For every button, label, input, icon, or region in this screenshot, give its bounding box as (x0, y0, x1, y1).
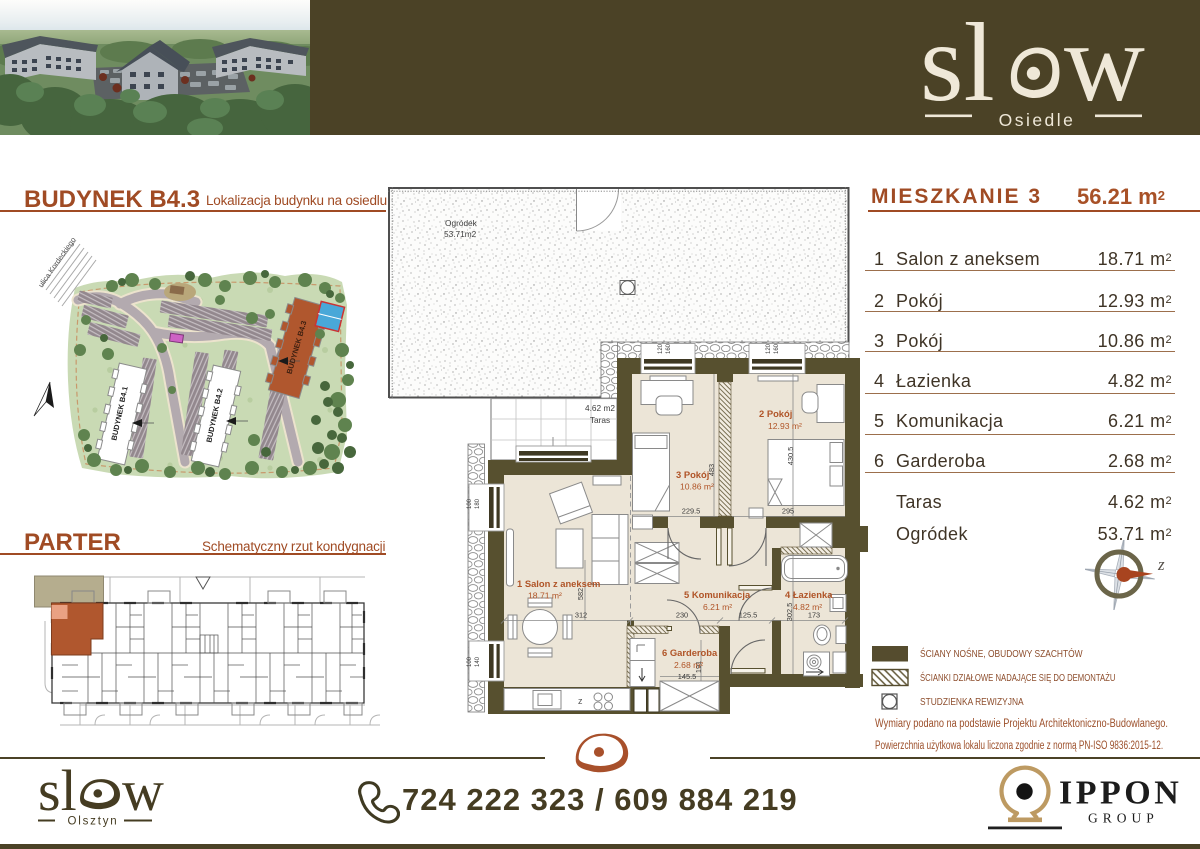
svg-text:10.86 m²: 10.86 m² (680, 482, 714, 492)
svg-text:120: 120 (658, 343, 664, 354)
svg-text:230: 230 (676, 611, 688, 620)
svg-text:6 Garderoba: 6 Garderoba (662, 647, 718, 658)
svg-text:Taras: Taras (590, 415, 610, 425)
svg-text:3 Pokój: 3 Pokój (676, 469, 709, 480)
svg-text:sl: sl (38, 760, 77, 823)
svg-text:w: w (122, 760, 164, 823)
svg-text:120: 120 (766, 343, 772, 354)
svg-text:2.68 m²: 2.68 m² (674, 660, 703, 670)
svg-text:160: 160 (774, 343, 780, 354)
svg-text:Osiedle: Osiedle (999, 110, 1076, 130)
svg-text:160: 160 (666, 343, 672, 354)
svg-text:430.5: 430.5 (786, 447, 795, 466)
svg-text:100: 100 (467, 498, 473, 509)
svg-text:100: 100 (467, 656, 473, 667)
svg-text:312: 312 (575, 611, 587, 620)
svg-text:ulica Kordeckiego: ulica Kordeckiego (36, 235, 77, 289)
svg-text:GROUP: GROUP (1088, 811, 1159, 826)
svg-text:z: z (578, 696, 583, 706)
svg-text:5 Komunikacja: 5 Komunikacja (684, 589, 751, 600)
svg-text:18.71 m²: 18.71 m² (528, 591, 562, 601)
svg-text:1 Salon z aneksem: 1 Salon z aneksem (517, 578, 600, 589)
svg-text:295: 295 (782, 507, 794, 516)
svg-text:IPPON: IPPON (1059, 775, 1180, 812)
svg-text:z: z (1157, 555, 1165, 574)
svg-text:4.62 m2: 4.62 m2 (585, 403, 615, 413)
svg-text:12.93 m²: 12.93 m² (768, 421, 802, 431)
svg-text:229.5: 229.5 (682, 507, 701, 516)
svg-text:4.82 m²: 4.82 m² (793, 602, 822, 612)
svg-text:140: 140 (475, 656, 481, 667)
svg-text:Ogródek: Ogródek (445, 218, 478, 228)
svg-text:w: w (1064, 1, 1145, 125)
svg-text:53.71m2: 53.71m2 (444, 229, 477, 239)
svg-text:2 Pokój: 2 Pokój (759, 408, 792, 419)
svg-text:4 Łazienka: 4 Łazienka (785, 589, 833, 600)
svg-text:6.21 m²: 6.21 m² (703, 602, 732, 612)
svg-text:sl: sl (920, 1, 995, 125)
svg-text:125.5: 125.5 (739, 611, 758, 620)
svg-text:Olsztyn: Olsztyn (68, 816, 119, 828)
svg-text:180: 180 (475, 498, 481, 509)
svg-text:582: 582 (576, 588, 585, 600)
